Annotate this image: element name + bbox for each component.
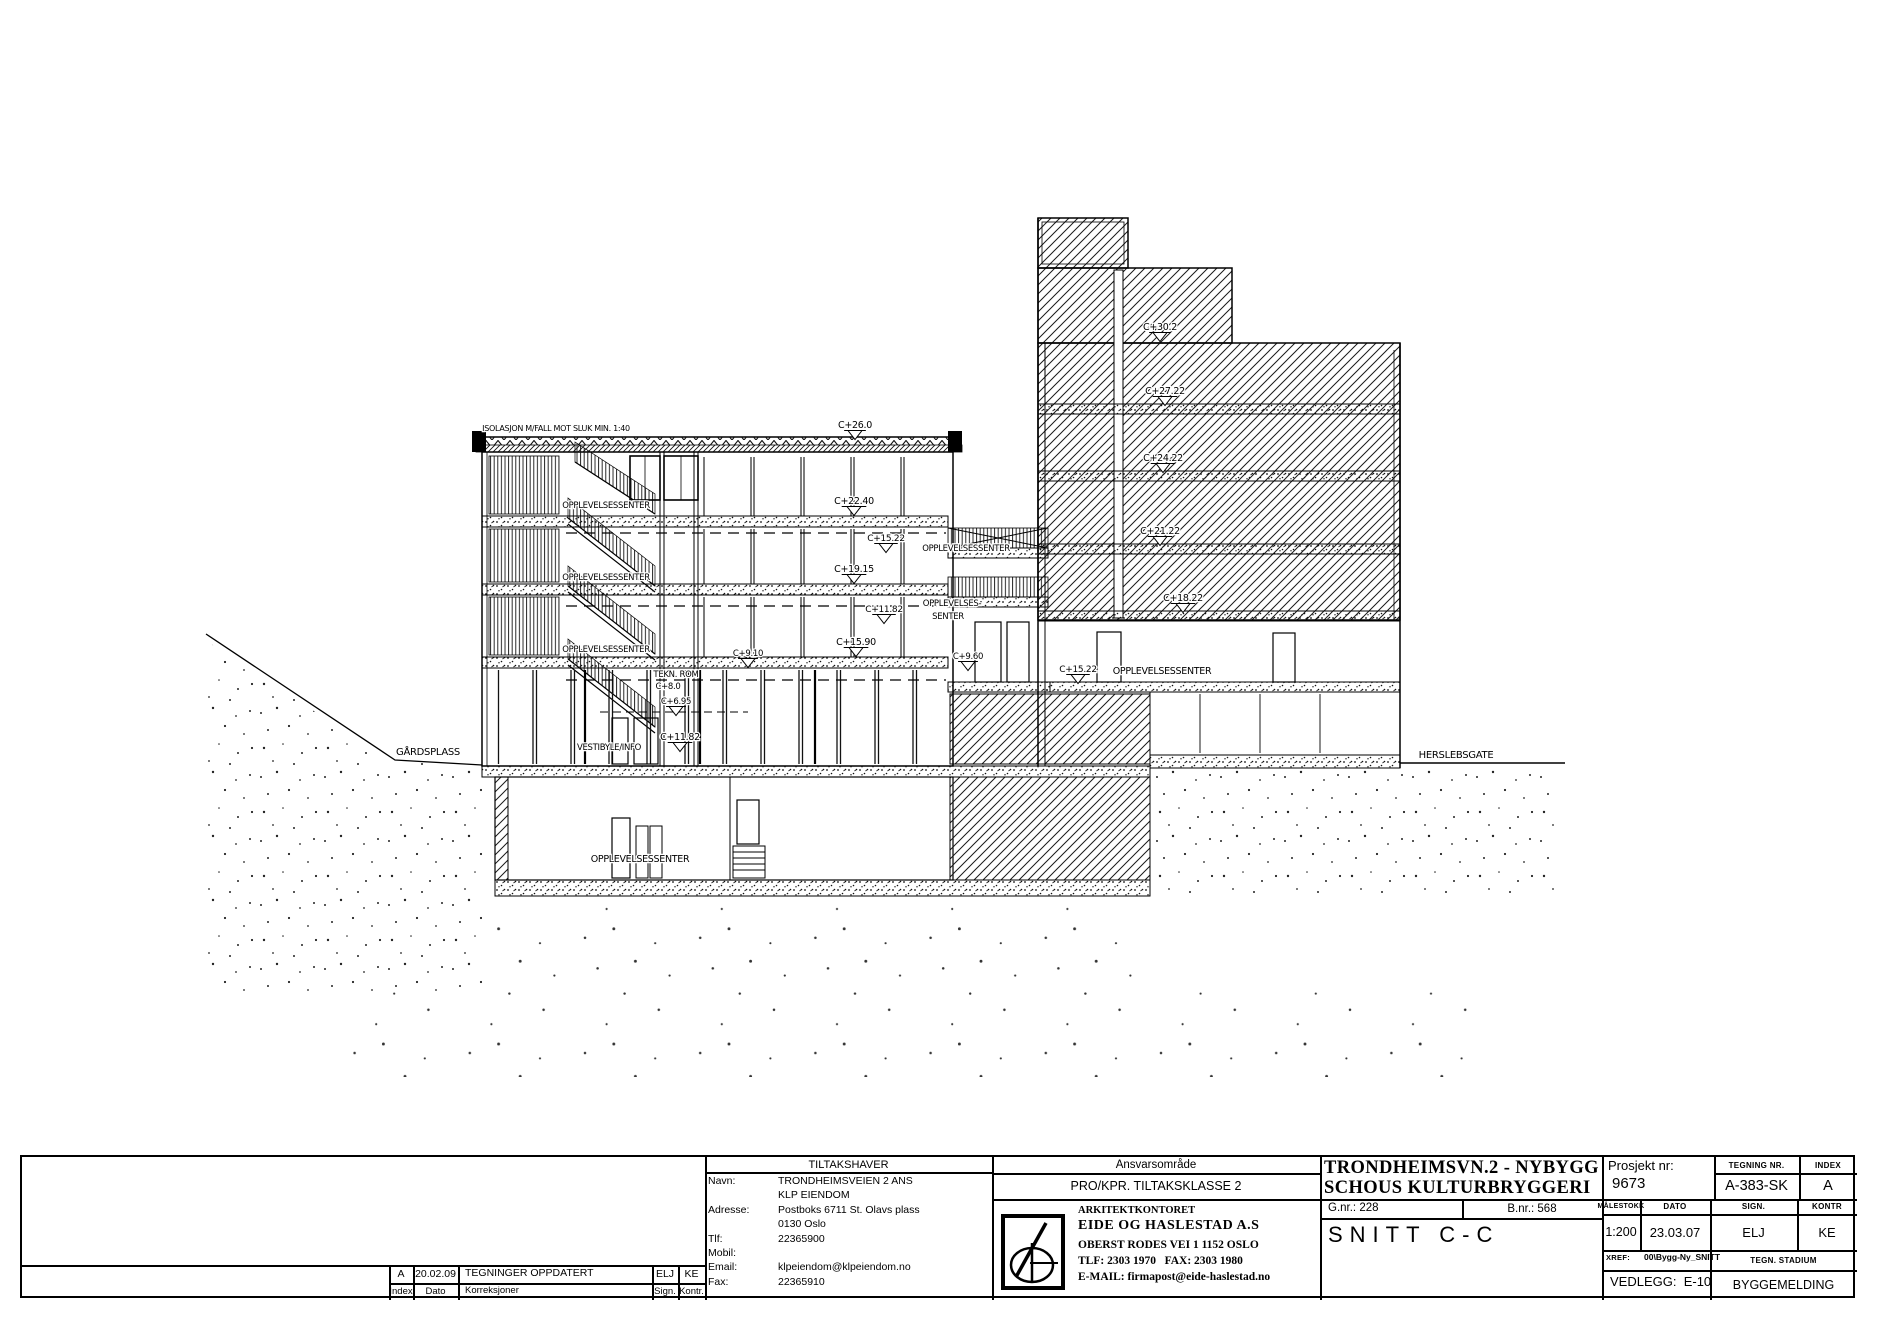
tegning-label: TEGNING NR.	[1714, 1157, 1799, 1173]
owner-spacer	[708, 1188, 778, 1202]
xref-value: 00\Bygg-Ny_SNITT	[1644, 1253, 1720, 1262]
owner-navn-value: TRONDHEIMSVEIEN 2 ANS	[778, 1174, 913, 1188]
revision-text: TEGNINGER OPPDATERT	[465, 1268, 594, 1280]
dato-label: DATO	[1640, 1199, 1710, 1214]
owner-navn-label: Navn:	[708, 1174, 778, 1188]
elevation-label: C+9.10	[733, 649, 763, 659]
xref-label: XREF:	[1606, 1254, 1630, 1262]
revision-col-index: Index	[389, 1283, 413, 1300]
drawing-label: OPPLEVELSESSENTER	[562, 573, 650, 583]
scale-value: 1:200	[1602, 1214, 1640, 1250]
divider	[1320, 1157, 1322, 1300]
prosjekt-label: Prosjekt nr:	[1608, 1159, 1674, 1173]
architect-firm: EIDE OG HASLESTAD A.S	[1078, 1218, 1259, 1233]
divider	[705, 1157, 707, 1300]
stadium-label: TEGN. STADIUM	[1710, 1250, 1857, 1270]
drawing-label: C+8.0	[655, 682, 680, 692]
elevation-label: C+22.40	[834, 496, 874, 507]
owner-tlf-label: Tlf:	[708, 1232, 778, 1246]
owner-adresse-value2: 0130 Oslo	[778, 1217, 826, 1231]
owner-tlf-value: 22365900	[778, 1232, 825, 1246]
owner-navn-value2: KLP EIENDOM	[778, 1188, 850, 1202]
tegning-nr: A-383-SK	[1714, 1173, 1799, 1199]
revision-kontr: KE	[678, 1265, 705, 1283]
owner-email-label: Email:	[708, 1260, 778, 1274]
owner-mobil-label: Mobil:	[708, 1246, 778, 1260]
divider	[22, 1265, 389, 1267]
sign-label: SIGN.	[1710, 1199, 1797, 1214]
architect-phone: TLF: 2303 1970 FAX: 2303 1980	[1078, 1255, 1243, 1268]
revision-date: 20.02.09	[413, 1265, 458, 1283]
owner-header: TILTAKSHAVER	[705, 1157, 992, 1172]
drawing-label: OPPLEVELSESSENTER	[562, 501, 650, 511]
divider	[458, 1265, 460, 1300]
drawing-label: OPPLEVELSESSENTER	[562, 645, 650, 655]
index-label: INDEX	[1799, 1157, 1857, 1173]
ansvar-header: Ansvarsområde	[992, 1157, 1320, 1173]
divider	[1320, 1218, 1602, 1220]
drawing-sheet: ISOLASJON M/FALL MOT SLUK MIN. 1:40C+26.…	[0, 0, 1900, 1343]
elevation-label: C+30.2	[1143, 322, 1177, 333]
drawing-label: ISOLASJON M/FALL MOT SLUK MIN. 1:40	[482, 424, 630, 433]
vedlegg-cell: VEDLEGG: E-10	[1610, 1275, 1711, 1289]
drawing-label: OPPLEVELSESSENTER	[1113, 666, 1212, 677]
kontr-label: KONTR	[1797, 1199, 1857, 1214]
ansvar-class: PRO/KPR. TILTAKSKLASSE 2	[992, 1173, 1320, 1199]
elevation-label: C+21.22	[1140, 526, 1180, 537]
project-title-line2: SCHOUS KULTURBRYGGERI	[1324, 1178, 1591, 1198]
index-value: A	[1799, 1173, 1857, 1199]
owner-fax-label: Fax:	[708, 1275, 778, 1289]
drawing-label: OPPLEVELSESSENTER	[591, 854, 690, 865]
bnr-cell: B.nr.: 568	[1462, 1199, 1602, 1218]
elevation-label: C+26.0	[838, 420, 872, 431]
elevation-label: C+27.22	[1145, 386, 1185, 397]
elevation-label: C+15.90	[836, 637, 876, 648]
project-title-line1: TRONDHEIMSVN.2 - NYBYGG	[1324, 1158, 1599, 1178]
elevation-label: C+15.22	[1059, 665, 1097, 675]
right-building	[1038, 218, 1400, 768]
revision-col-kontr: Kontr.	[678, 1283, 705, 1300]
revision-sign: ELJ	[652, 1265, 678, 1283]
drawing-label: OPPLEVELSESSENTER	[922, 544, 1010, 554]
elevation-label: C+6.95	[661, 697, 691, 707]
elevation-label: C+11.82	[865, 605, 903, 615]
elevation-label: C+18.22	[1163, 593, 1203, 604]
owner-fax-value: 22365910	[778, 1275, 825, 1289]
gnr-cell: G.nr.: 228	[1328, 1202, 1379, 1215]
drawing-label: GÅRDSPLASS	[396, 745, 460, 758]
title-block: A 20.02.09 TEGNINGER OPPDATERT ELJ KE In…	[20, 1155, 1855, 1298]
sign-value: ELJ	[1710, 1214, 1797, 1250]
drawing-title: SNITT C-C	[1328, 1223, 1499, 1247]
level-marker-icon	[961, 662, 975, 671]
architect-address: OBERST RODES VEI 1 1152 OSLO	[1078, 1239, 1259, 1252]
drawing-label: HERSLEBSGATE	[1419, 750, 1494, 761]
elevation-label: C+15.22	[867, 534, 905, 544]
architect-kontoret: ARKITEKTKONTORET	[1078, 1205, 1195, 1217]
prosjekt-nr: 9673	[1612, 1176, 1645, 1193]
owner-block: Navn:TRONDHEIMSVEIEN 2 ANS KLP EIENDOM A…	[708, 1174, 990, 1289]
drawing-label: VESTIBYLE/INFO	[577, 743, 642, 753]
elevation-label: C+9.60	[953, 652, 983, 662]
drawing-label: OPPLEVELSES-	[923, 599, 982, 609]
section-drawing: ISOLASJON M/FALL MOT SLUK MIN. 1:40C+26.…	[0, 0, 1900, 1343]
revision-col-sign: Sign.	[652, 1283, 678, 1300]
revision-index: A	[389, 1265, 413, 1283]
owner-spacer	[708, 1217, 778, 1231]
drawing-label: SENTER	[932, 612, 964, 622]
architect-logo	[1000, 1213, 1068, 1293]
kontr-value: KE	[1797, 1214, 1857, 1250]
owner-email-value: klpeiendom@klpeiendom.no	[778, 1260, 911, 1274]
elevation-label: C+11.82	[660, 732, 700, 743]
revision-col-dato: Dato	[413, 1283, 458, 1300]
revision-col-korr: Korreksjoner	[465, 1286, 519, 1296]
architect-email: E-MAIL: firmapost@eide-haslestad.no	[1078, 1271, 1270, 1284]
malestokk-label: MÅLESTOKK	[1602, 1199, 1640, 1214]
elevation-label: C+24.22	[1143, 453, 1183, 464]
stadium-value: BYGGEMELDING	[1710, 1270, 1857, 1300]
owner-adresse-value: Postboks 6711 St. Olavs plass	[778, 1203, 920, 1217]
drawing-label: TEKN. ROM	[652, 670, 698, 680]
date-value: 23.03.07	[1640, 1214, 1710, 1250]
elevation-label: C+19.15	[834, 564, 874, 575]
owner-adresse-label: Adresse:	[708, 1203, 778, 1217]
